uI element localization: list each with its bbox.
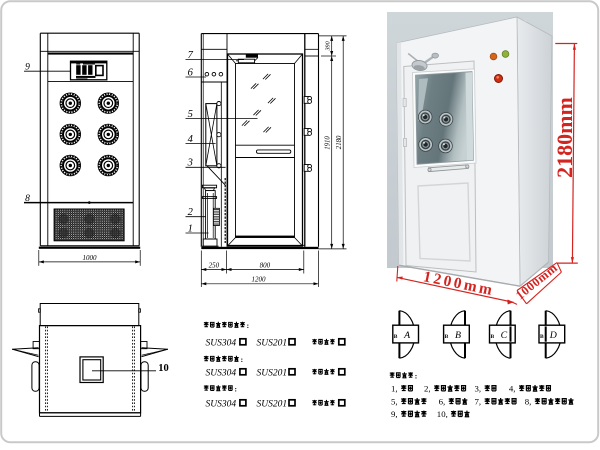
svg-text:2180: 2180 <box>336 135 343 149</box>
svg-text:B: B <box>394 334 398 340</box>
svg-text:7,: 7, <box>475 396 482 406</box>
svg-text::: : <box>247 321 250 330</box>
svg-text:800: 800 <box>260 261 271 269</box>
svg-text:390: 390 <box>324 40 331 51</box>
svg-text:C: C <box>501 330 508 341</box>
svg-text:4,: 4, <box>509 383 516 393</box>
svg-text:SUS304: SUS304 <box>206 339 237 349</box>
svg-text:6,: 6, <box>439 396 446 406</box>
svg-text:SUS304: SUS304 <box>206 400 237 410</box>
svg-text:2,: 2, <box>424 383 431 393</box>
svg-text:8,: 8, <box>525 396 532 406</box>
svg-text:1910: 1910 <box>324 136 331 150</box>
svg-text:1200: 1200 <box>252 276 267 284</box>
svg-text:B: B <box>455 330 461 341</box>
svg-text:D: D <box>549 330 557 341</box>
svg-text:B: B <box>490 334 494 340</box>
svg-text:B: B <box>445 334 449 340</box>
svg-text:1000: 1000 <box>83 254 98 262</box>
svg-text:SUS304: SUS304 <box>206 369 237 379</box>
svg-text:SUS201: SUS201 <box>257 400 288 410</box>
svg-text::: : <box>235 384 238 393</box>
svg-text:1,: 1, <box>391 383 398 393</box>
svg-text:A: A <box>403 330 411 341</box>
svg-text:3,: 3, <box>475 383 482 393</box>
svg-text:5,: 5, <box>391 396 398 406</box>
svg-text:SUS201: SUS201 <box>257 369 288 379</box>
svg-text:10: 10 <box>158 363 169 374</box>
svg-text:250: 250 <box>209 261 220 269</box>
svg-text:9,: 9, <box>391 409 398 419</box>
svg-text::: : <box>415 371 418 380</box>
svg-text:SUS201: SUS201 <box>257 339 288 349</box>
svg-text:10,: 10, <box>437 409 448 419</box>
svg-text:2180mm: 2180mm <box>552 97 577 178</box>
svg-text::: : <box>241 355 244 364</box>
svg-text:B: B <box>540 334 544 340</box>
